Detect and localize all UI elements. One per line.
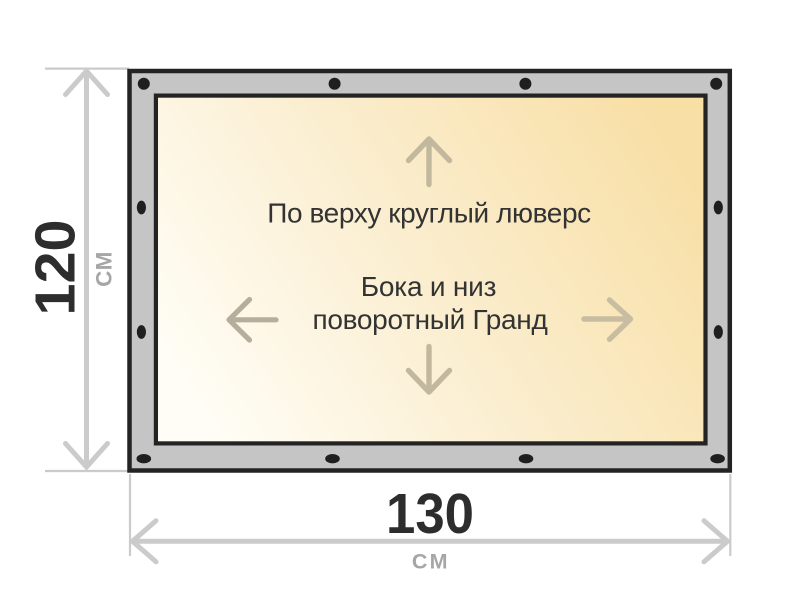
svg-text:поворотный Гранд: поворотный Гранд <box>313 304 548 335</box>
svg-text:130: 130 <box>386 482 474 546</box>
svg-text:По верху круглый люверс: По верху круглый люверс <box>267 198 591 229</box>
svg-text:120: 120 <box>24 220 88 316</box>
svg-text:Бока и низ: Бока и низ <box>361 271 497 302</box>
svg-text:СМ: СМ <box>92 251 117 287</box>
svg-text:СМ: СМ <box>412 550 450 574</box>
